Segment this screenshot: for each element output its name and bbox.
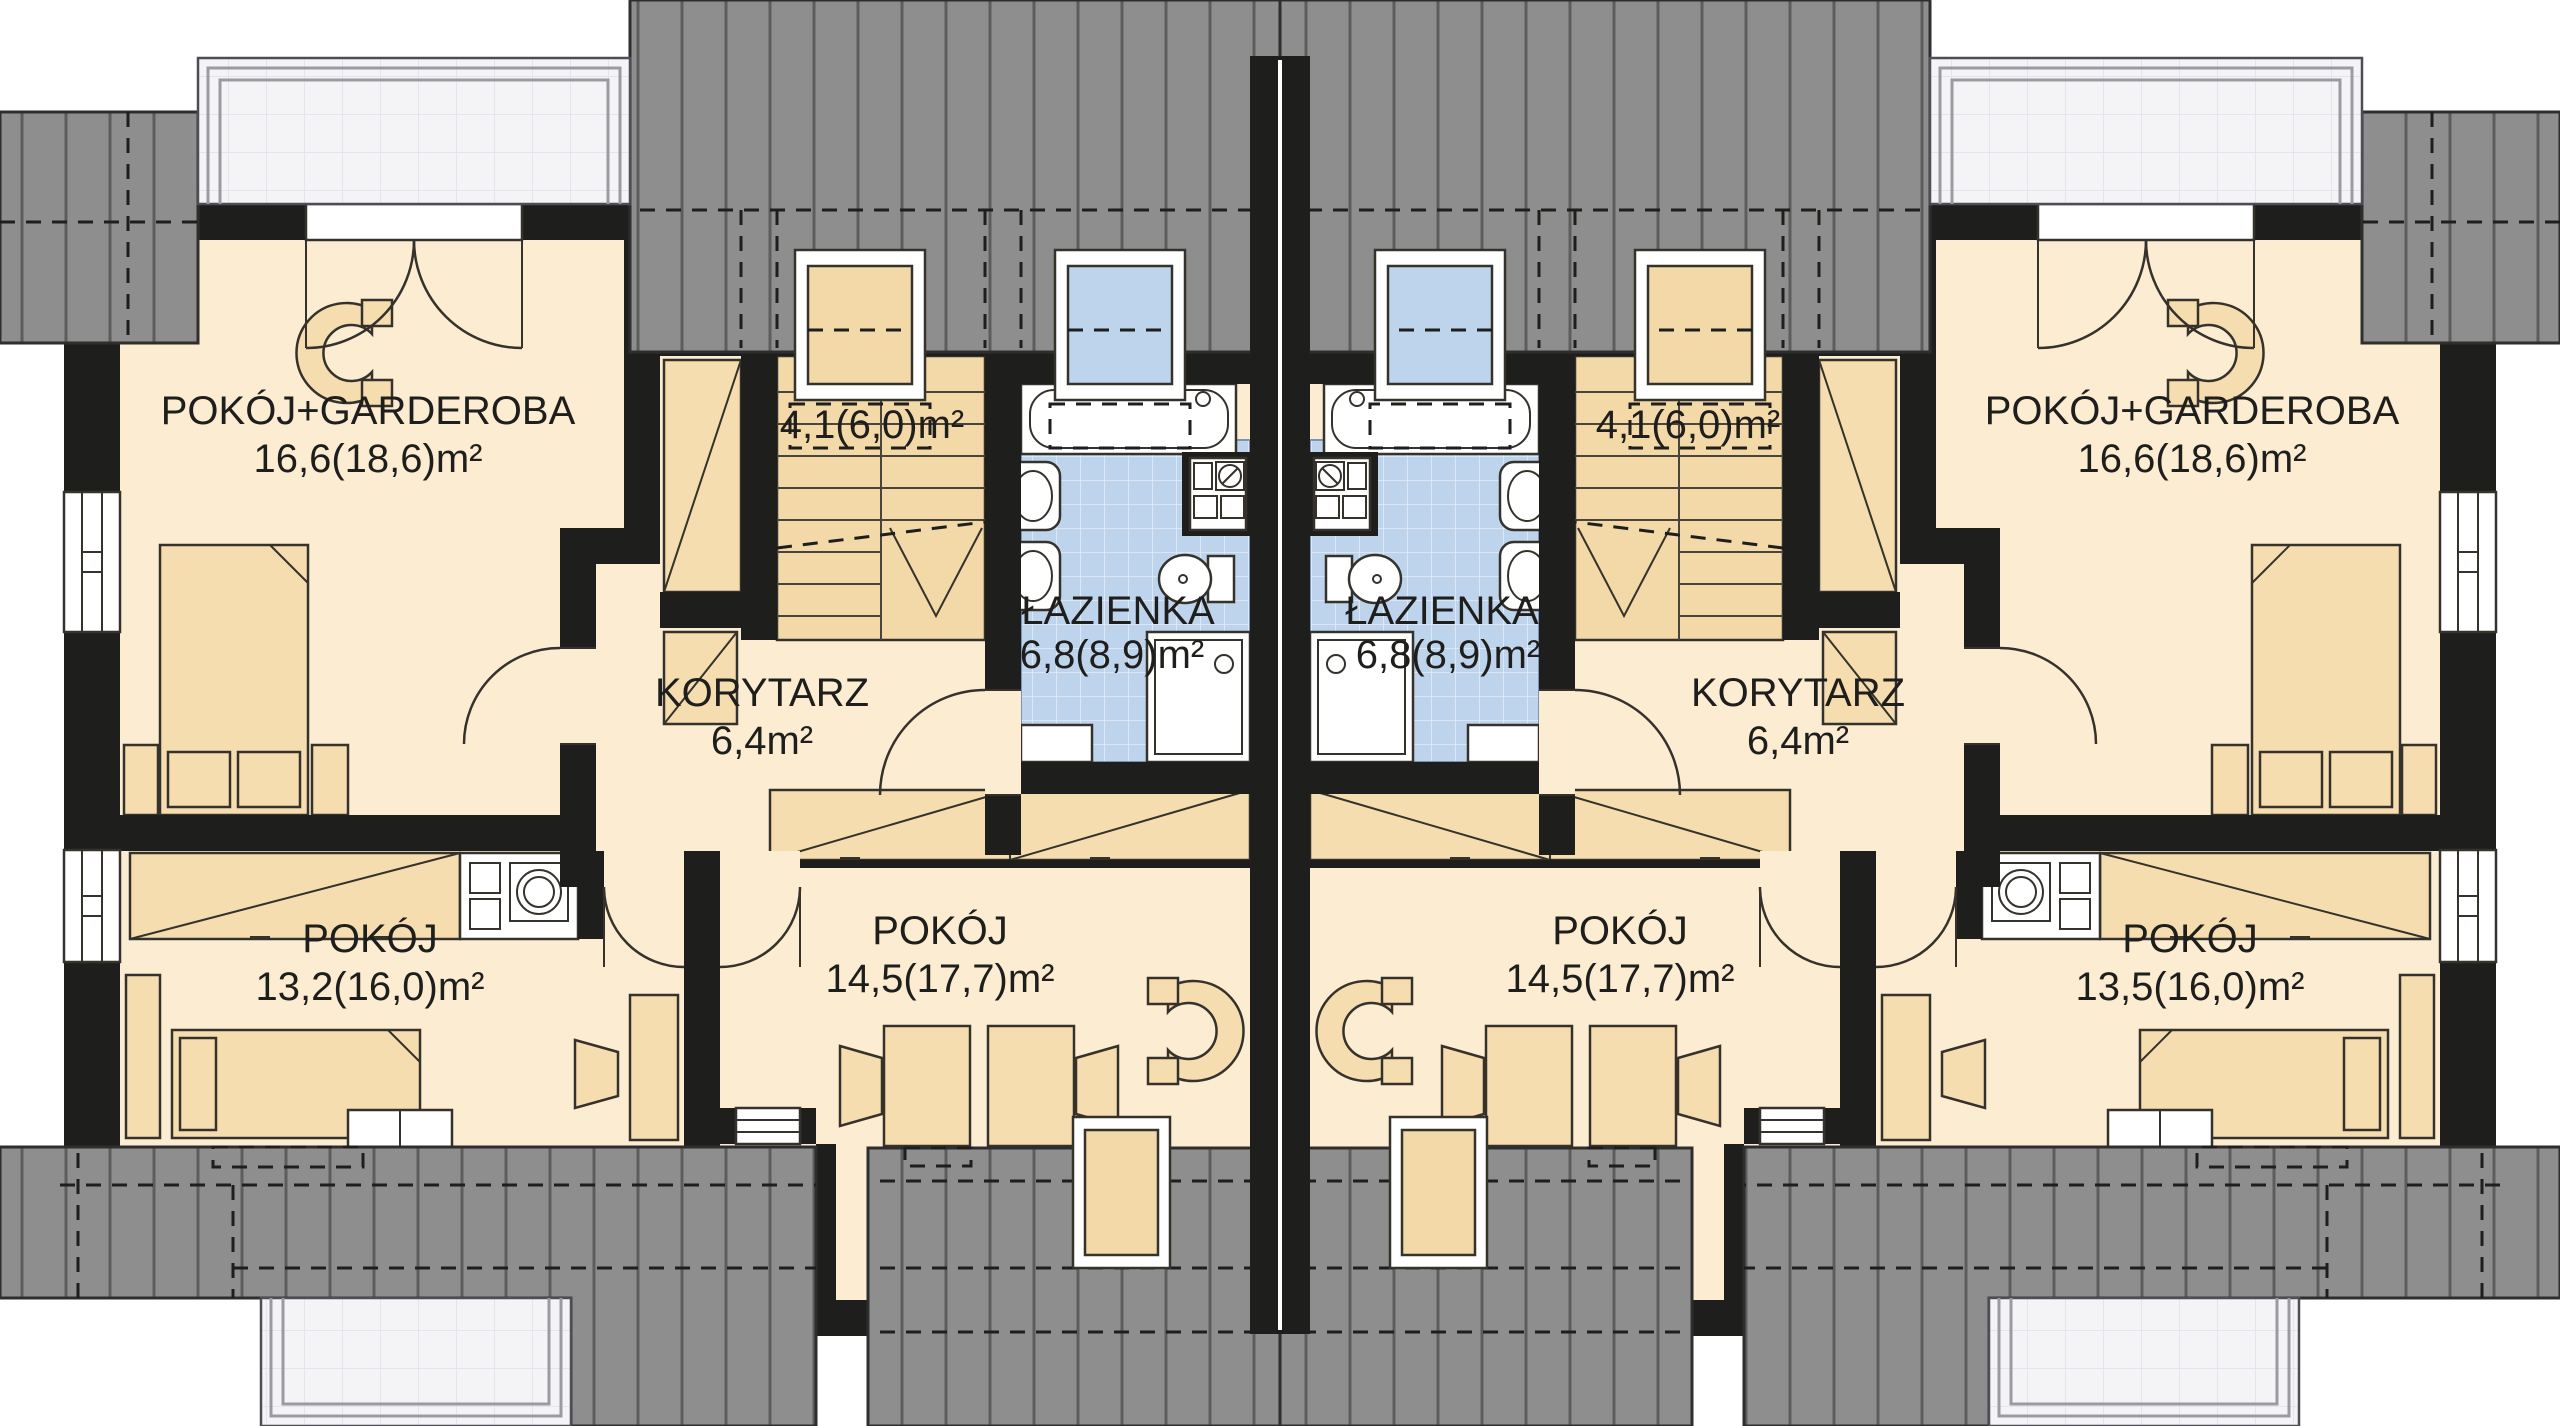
room-area: 14,5(17,7)m² [826, 957, 1055, 1001]
room-label: POKÓJ [872, 908, 1008, 953]
room-area: 13,2(16,0)m² [256, 965, 485, 1009]
room-label: KORYTARZ [1691, 671, 1905, 715]
room-label: POKÓJ+GARDEROBA [161, 388, 576, 433]
room-area: 4,1(6,0)m² [780, 403, 965, 447]
room-label: KORYTARZ [655, 671, 869, 715]
unit-left [0, 0, 1280, 1426]
unit-right [1280, 0, 2560, 1426]
room-area: 6,8(8,9)m² [1020, 633, 1205, 677]
room-area: 6,8(8,9)m² [1356, 633, 1541, 677]
room-area: 6,4m² [1747, 719, 1849, 763]
room-area: 13,5(16,0)m² [2076, 965, 2305, 1009]
room-label: POKÓJ [2122, 916, 2258, 961]
floor-plan-drawing: POKÓJ+GARDEROBA 16,6(18,6)m² 4,1(6,0)m² … [0, 0, 2560, 1426]
room-area: 6,4m² [711, 719, 813, 763]
room-label: ŁAZIENKA [1021, 589, 1215, 633]
room-area: 14,5(17,7)m² [1506, 957, 1735, 1001]
room-area: 16,6(18,6)m² [2078, 437, 2307, 481]
room-label: POKÓJ [1552, 908, 1688, 953]
floor-plan-page: POKÓJ+GARDEROBA 16,6(18,6)m² 4,1(6,0)m² … [0, 0, 2560, 1426]
room-label: POKÓJ [302, 916, 438, 961]
room-label: POKÓJ+GARDEROBA [1985, 388, 2400, 433]
room-label: ŁAZIENKA [1345, 589, 1539, 633]
party-wall [1250, 56, 1310, 1334]
room-area: 4,1(6,0)m² [1596, 403, 1781, 447]
room-area: 16,6(18,6)m² [254, 437, 483, 481]
